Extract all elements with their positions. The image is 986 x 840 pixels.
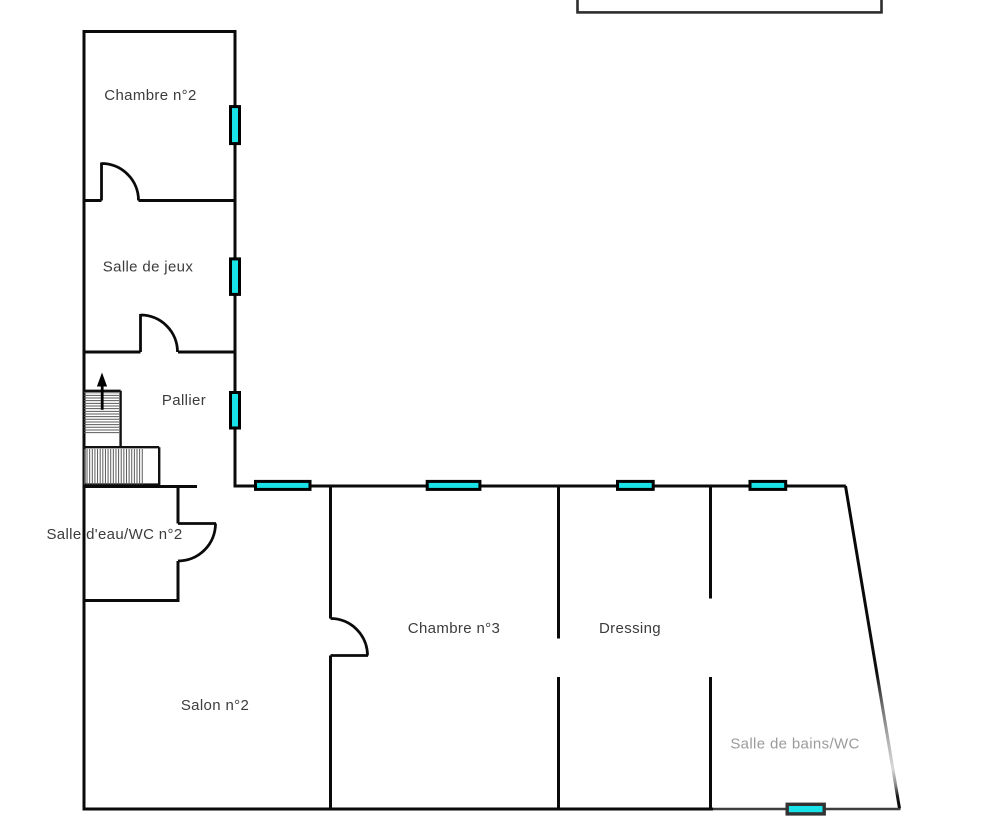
svg-text:Salle de bains/WC: Salle de bains/WC [730, 736, 859, 753]
svg-text:Salle de jeux: Salle de jeux [103, 259, 194, 276]
svg-text:Chambre n°3: Chambre n°3 [408, 620, 500, 637]
svg-text:Chambre n°2: Chambre n°2 [104, 87, 196, 104]
svg-text:Salon n°2: Salon n°2 [181, 697, 249, 714]
svg-text:Dressing: Dressing [599, 620, 661, 637]
svg-text:Salle d'eau/WC n°2: Salle d'eau/WC n°2 [46, 526, 182, 543]
svg-text:Pallier: Pallier [162, 392, 206, 409]
